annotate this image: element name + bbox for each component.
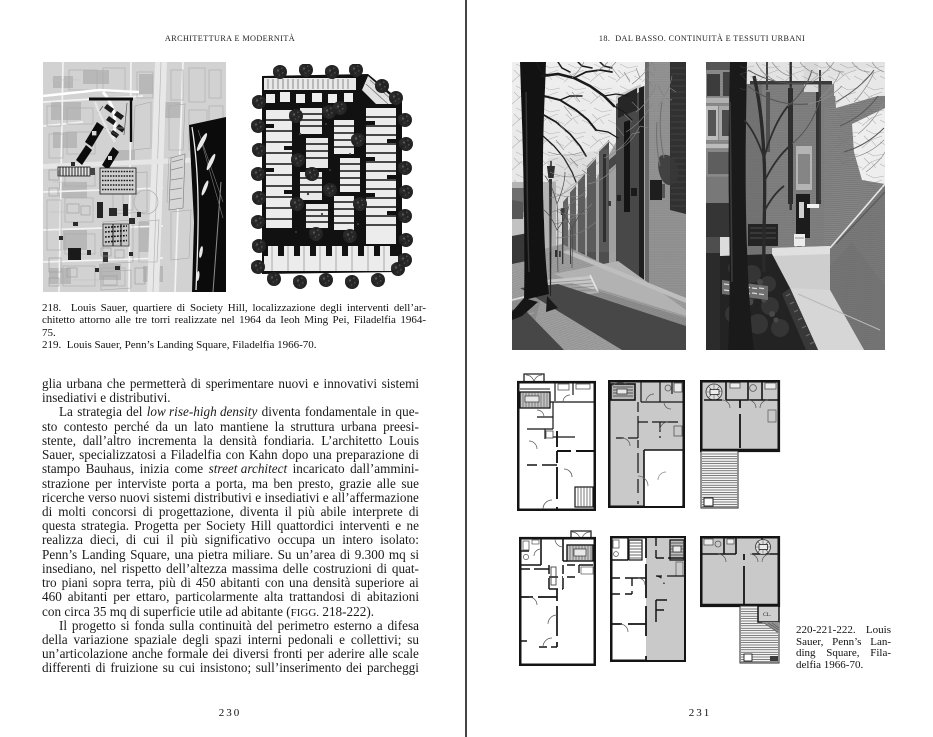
svg-text:CL.: CL. bbox=[763, 612, 772, 618]
